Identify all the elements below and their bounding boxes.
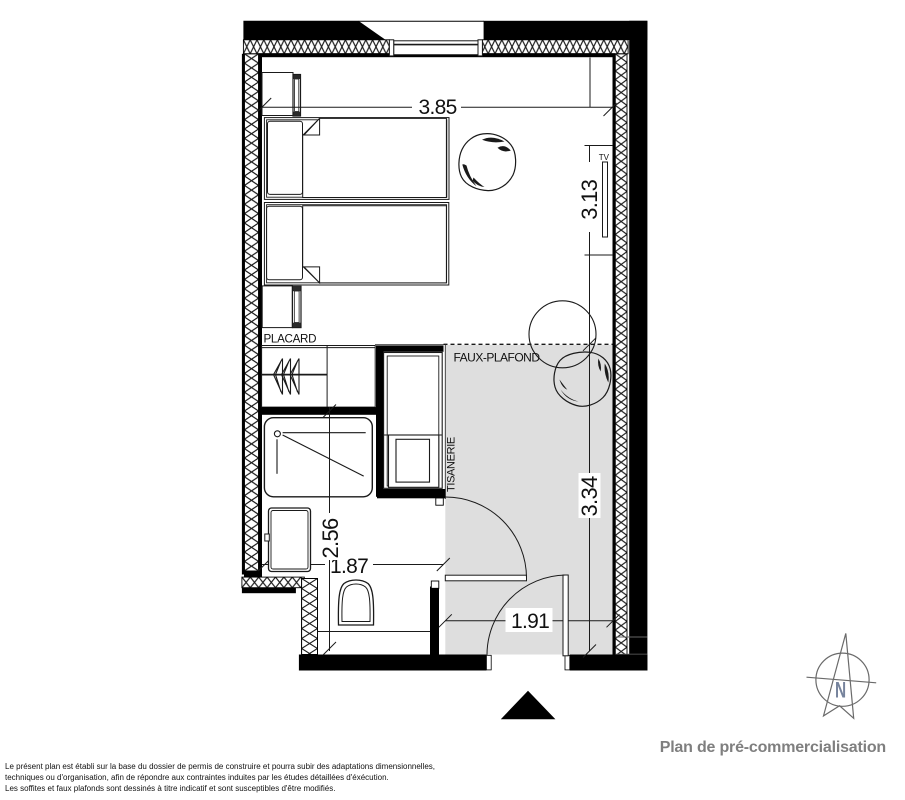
svg-text:TV: TV — [599, 153, 610, 162]
svg-text:2.56: 2.56 — [318, 518, 343, 558]
svg-text:PLACARD: PLACARD — [264, 332, 317, 345]
svg-text:N: N — [835, 679, 846, 703]
svg-text:Le présent plan est établi sur: Le présent plan est établi sur la base d… — [5, 762, 435, 771]
svg-text:Les soffites et faux plafonds: Les soffites et faux plafonds sont dessi… — [5, 784, 335, 793]
svg-text:TISANERIE: TISANERIE — [445, 437, 457, 492]
svg-text:Plan de pré-commercialisation: Plan de pré-commercialisation — [660, 739, 886, 756]
svg-text:FAUX-PLAFOND: FAUX-PLAFOND — [454, 351, 541, 365]
svg-text:3.34: 3.34 — [577, 476, 602, 516]
svg-text:3.13: 3.13 — [577, 179, 602, 219]
svg-text:1.91: 1.91 — [511, 610, 549, 633]
svg-text:techniques ou d'organisation,: techniques ou d'organisation, afin de ré… — [5, 773, 389, 782]
svg-text:3.85: 3.85 — [419, 96, 457, 119]
